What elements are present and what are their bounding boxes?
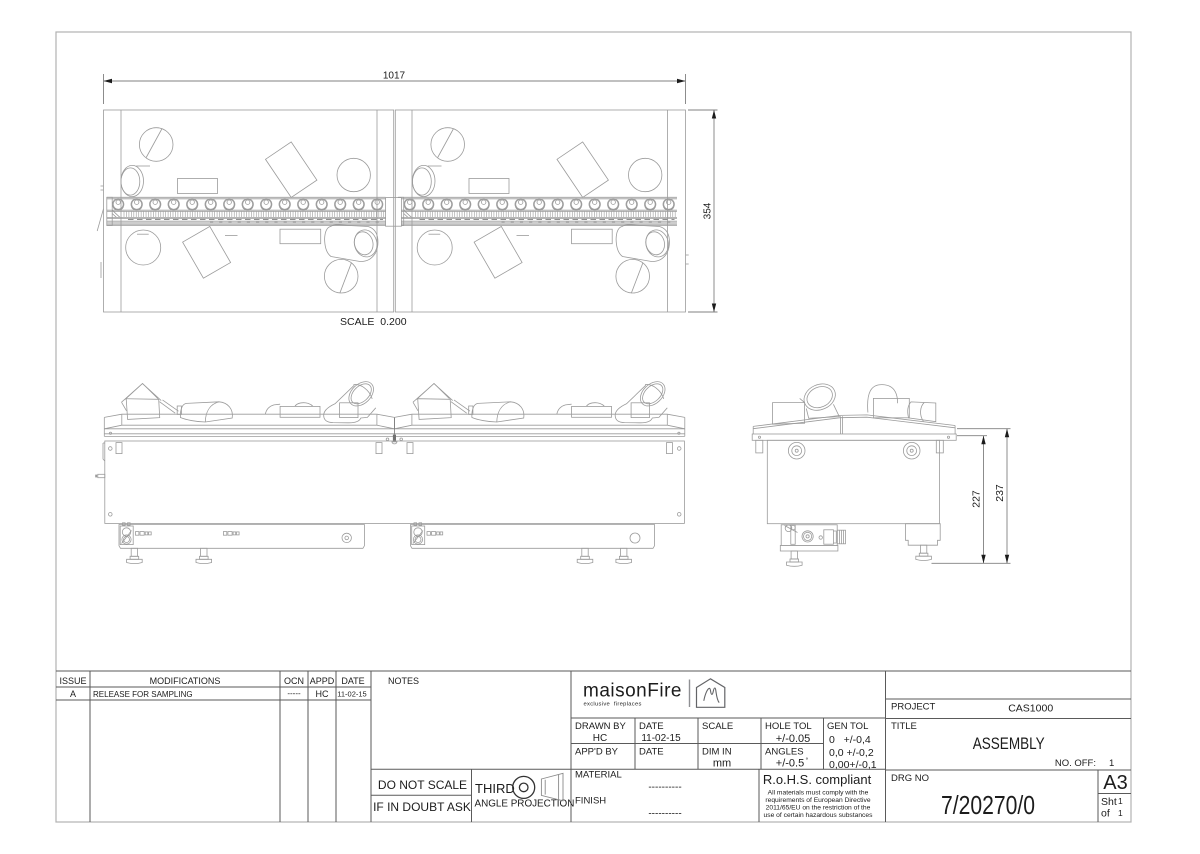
svg-text:requirements of European Direc: requirements of European Directive (765, 797, 870, 804)
svg-text:NOTES: NOTES (388, 676, 419, 686)
svg-text:0,0 +/-0,2: 0,0 +/-0,2 (829, 747, 874, 759)
svg-text:A3: A3 (1103, 772, 1127, 794)
svg-text:R.o.H.S. compliant: R.o.H.S. compliant (763, 772, 872, 787)
svg-text:NO. OFF:: NO. OFF: (1055, 758, 1096, 769)
svg-text:TITLE: TITLE (891, 721, 917, 732)
svg-text:0,00+/-0,1: 0,00+/-0,1 (829, 759, 877, 771)
svg-text:PROJECT: PROJECT (891, 702, 936, 713)
svg-text:All materials must comply with: All materials must comply with the (768, 790, 869, 797)
svg-text:CAS1000: CAS1000 (1008, 703, 1053, 715)
svg-text:DO NOT SCALE: DO NOT SCALE (378, 778, 467, 792)
svg-text:HC: HC (593, 733, 607, 744)
svg-text:1: 1 (1109, 758, 1114, 769)
svg-text:1: 1 (1118, 796, 1123, 806)
svg-text:of: of (1101, 808, 1110, 820)
svg-text:11-02-15: 11-02-15 (641, 733, 681, 744)
svg-text:2011/65/EU on the restriction: 2011/65/EU on the restriction of the (766, 805, 871, 812)
svg-text:OCN: OCN (284, 676, 304, 686)
svg-text:FINISH: FINISH (575, 796, 606, 807)
svg-text:11-02-15: 11-02-15 (337, 690, 366, 699)
svg-text:DATE: DATE (639, 747, 664, 758)
svg-text:----------: ---------- (648, 809, 681, 820)
svg-text:MATERIAL: MATERIAL (575, 770, 622, 781)
svg-text:0 +/-0,4: 0 +/-0,4 (829, 734, 871, 746)
svg-text:SCALE 0.200: SCALE 0.200 (340, 316, 407, 328)
svg-text:227: 227 (971, 490, 983, 508)
svg-text:HC: HC (316, 689, 329, 699)
svg-text:DIM IN: DIM IN (702, 747, 732, 758)
svg-text:+/-0.05: +/-0.05 (776, 733, 811, 745)
svg-text:A: A (70, 689, 76, 699)
svg-text:----------: ---------- (648, 782, 681, 793)
svg-text:1017: 1017 (383, 71, 406, 82)
svg-text:ANGLES: ANGLES (765, 747, 804, 758)
svg-text:Sht: Sht (1101, 796, 1117, 808)
svg-text:SCALE: SCALE (702, 721, 733, 732)
svg-text:-----: ----- (287, 689, 301, 698)
svg-text:GEN TOL: GEN TOL (827, 721, 868, 732)
svg-text:use of certain hazardous subst: use of certain hazardous substances (764, 812, 874, 819)
svg-text:mm: mm (713, 758, 731, 770)
svg-text:354: 354 (703, 202, 714, 219)
svg-text:237: 237 (994, 484, 1006, 502)
svg-text:RELEASE FOR SAMPLING: RELEASE FOR SAMPLING (93, 690, 193, 699)
svg-text:HOLE TOL: HOLE TOL (765, 721, 812, 732)
svg-text:+/-0.5: +/-0.5 (776, 758, 804, 770)
svg-text:MODIFICATIONS: MODIFICATIONS (150, 676, 221, 686)
svg-text:THIRD: THIRD (475, 781, 515, 796)
svg-text:DRG NO: DRG NO (891, 773, 929, 784)
svg-text:DRAWN BY: DRAWN BY (575, 721, 627, 732)
svg-text:1: 1 (1118, 808, 1123, 818)
svg-text:exclusive fireplaces: exclusive fireplaces (584, 702, 642, 708)
svg-text:IF IN DOUBT ASK: IF IN DOUBT ASK (373, 800, 471, 814)
svg-text:APP'D BY: APP'D BY (575, 747, 619, 758)
svg-text:DATE: DATE (341, 676, 364, 686)
svg-text:7/20270/0: 7/20270/0 (941, 790, 1035, 820)
svg-text:DATE: DATE (639, 721, 664, 732)
svg-text:ASSEMBLY: ASSEMBLY (973, 735, 1045, 753)
svg-text:ISSUE: ISSUE (59, 676, 86, 686)
svg-text:°: ° (806, 757, 809, 765)
svg-text:maisonFire: maisonFire (583, 681, 682, 702)
svg-text:APPD: APPD (310, 676, 335, 686)
